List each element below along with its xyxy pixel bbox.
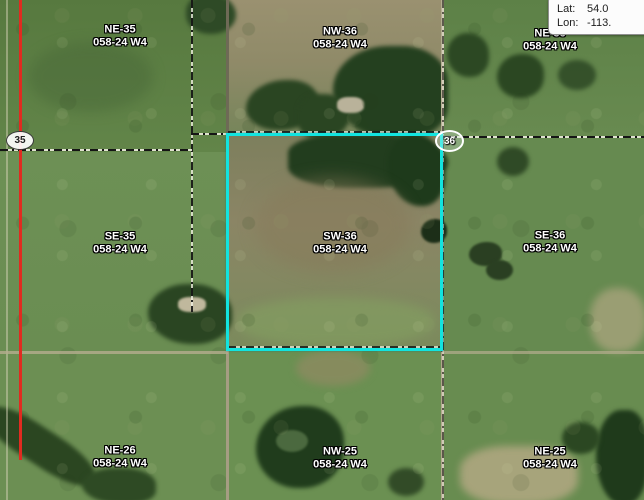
township-id: 058-24 W4 <box>523 40 577 53</box>
latitude-label: Lat: <box>557 2 587 16</box>
quarter-line-vertical <box>191 0 193 312</box>
quarter-id: SE-36 <box>523 230 577 243</box>
section-line-west-a <box>0 149 192 151</box>
township-id: 058-24 W4 <box>523 458 577 471</box>
quarter-id: NE-25 <box>523 446 577 459</box>
longitude-label: Lon: <box>557 16 587 30</box>
quarter-id: SE-35 <box>93 231 147 244</box>
parcel-nw-25[interactable] <box>228 351 443 500</box>
section-marker-36: 36 <box>435 130 464 152</box>
parcel-nw-36[interactable] <box>228 0 443 135</box>
section-line-west-b <box>191 133 228 135</box>
highlighted-road-red <box>19 0 22 460</box>
township-id: 058-24 W4 <box>93 457 147 470</box>
longitude-row: Lon:-113. <box>557 16 644 30</box>
section-label-nw-25: NW-25 058-24 W4 <box>313 446 367 471</box>
section-label-ne-26: NE-26 058-24 W4 <box>93 445 147 470</box>
section-label-ne-35: NE-35 058-24 W4 <box>93 24 147 49</box>
parcel-ne-25[interactable] <box>443 352 644 500</box>
latitude-value: 54.0 <box>587 3 608 15</box>
section-line-east <box>443 136 644 138</box>
quarter-id: NE-26 <box>93 445 147 458</box>
satellite-map-canvas[interactable]: NE-35 058-24 W4 NW-36 058-24 W4 NE-36 05… <box>0 0 644 500</box>
quarter-id: NW-25 <box>313 446 367 459</box>
longitude-value: -113. <box>587 17 611 29</box>
section-label-se-35: SE-35 058-24 W4 <box>93 231 147 256</box>
quarter-id: SW-36 <box>313 231 367 244</box>
township-id: 058-24 W4 <box>93 36 147 49</box>
coordinates-info-box: Lat:54.0 Lon:-113. <box>548 0 644 35</box>
road-east-west-south-right <box>443 351 644 354</box>
section-label-sw-36: SW-36 058-24 W4 <box>313 231 367 256</box>
quarter-id: NE-35 <box>93 24 147 37</box>
parcel-ne-26[interactable] <box>0 352 228 500</box>
section-label-ne-25: NE-25 058-24 W4 <box>523 446 577 471</box>
road-east-west-south-left <box>0 351 228 354</box>
section-label-se-36: SE-36 058-24 W4 <box>523 230 577 255</box>
section-label-nw-36: NW-36 058-24 W4 <box>313 26 367 51</box>
township-id: 058-24 W4 <box>523 242 577 255</box>
section-marker-35: 35 <box>6 131 34 150</box>
latitude-row: Lat:54.0 <box>557 2 644 16</box>
township-id: 058-24 W4 <box>313 458 367 471</box>
township-id: 058-24 W4 <box>93 243 147 256</box>
road-left-pale <box>6 0 8 500</box>
township-id: 058-24 W4 <box>313 243 367 256</box>
quarter-id: NW-36 <box>313 26 367 39</box>
township-id: 058-24 W4 <box>313 38 367 51</box>
